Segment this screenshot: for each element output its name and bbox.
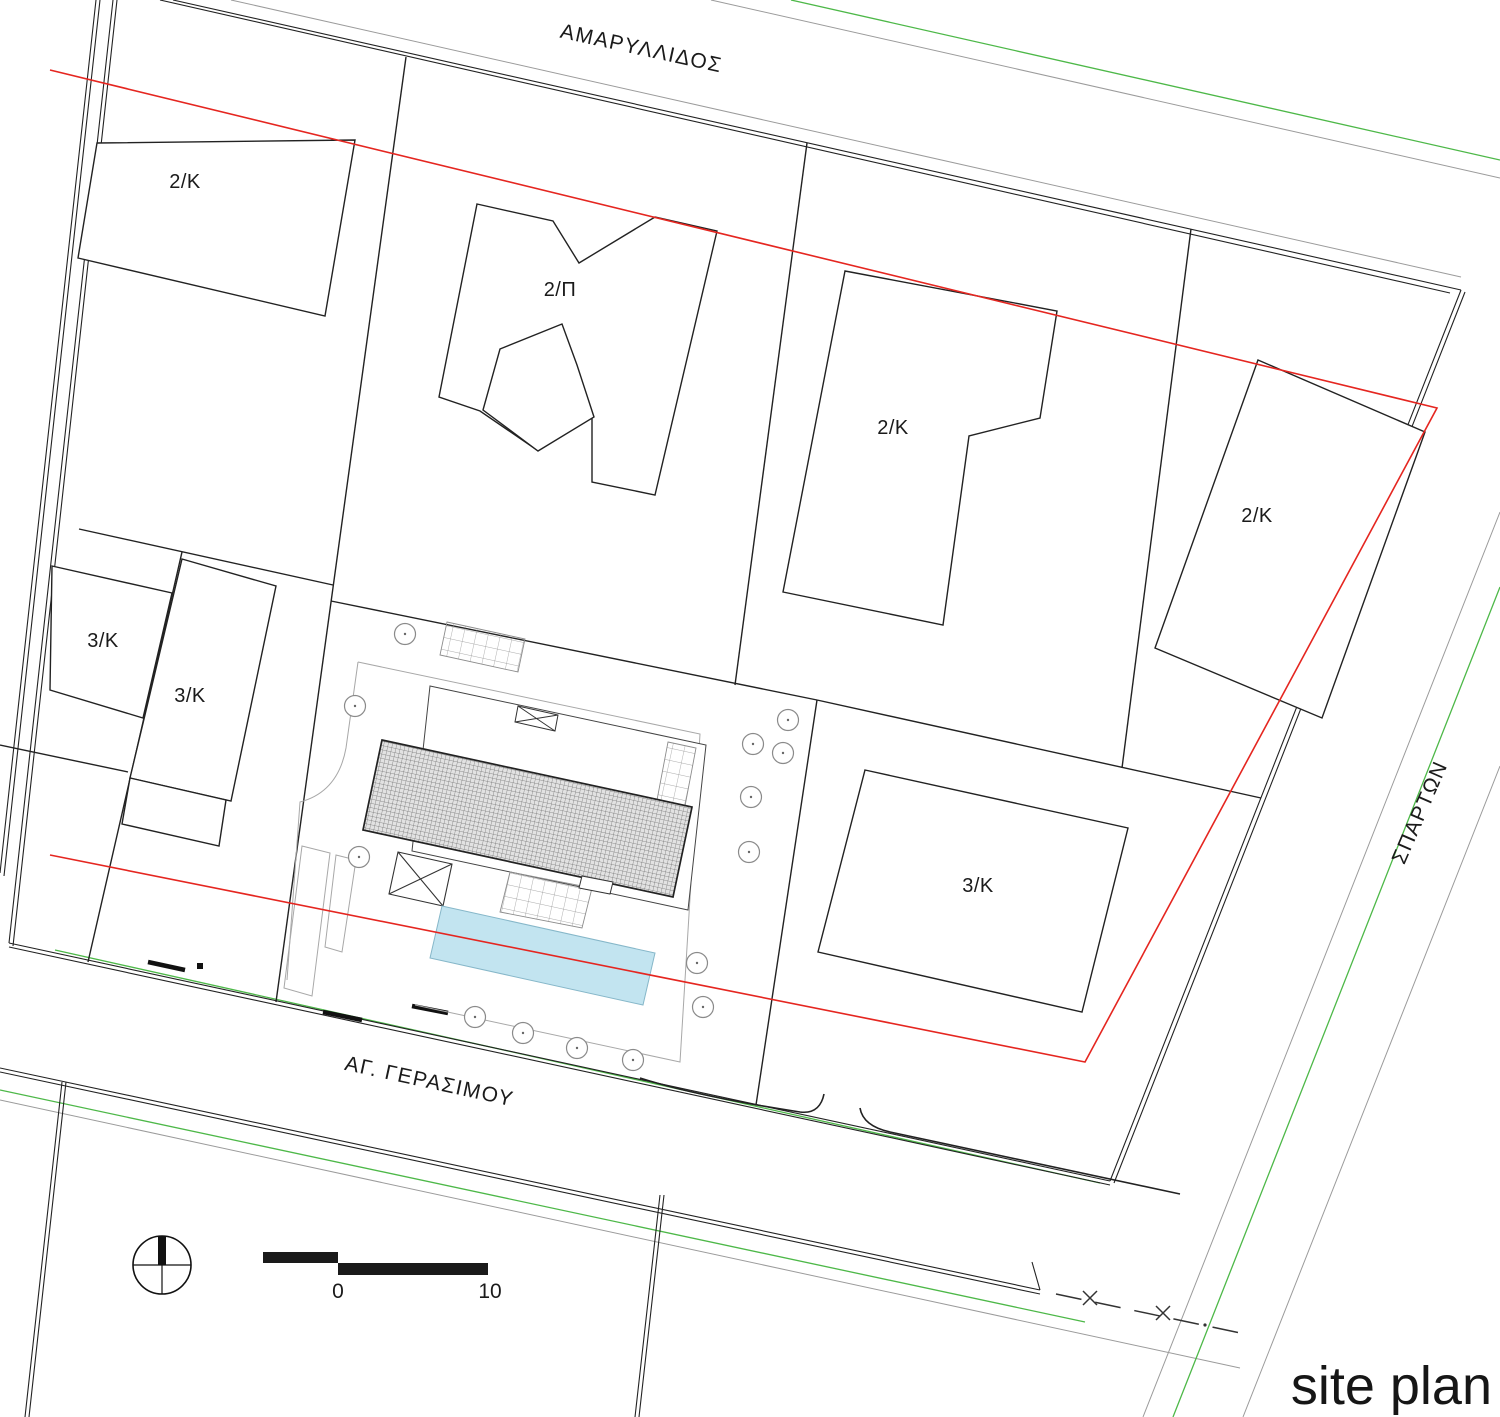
street-top-label: ΑΜΑΡΥΛΛΙΔΟΣ — [558, 20, 724, 78]
site-plan-drawing: 0 10 ΑΜΑΡΥΛΛΙΔΟΣ ΣΠΑΡΤΩΝ ΑΓ. ΓΕΡΑΣΙΜΟΥ 2… — [0, 0, 1500, 1417]
scale-end-label: 10 — [478, 1280, 501, 1303]
gate-marks — [148, 962, 448, 1020]
pool — [430, 906, 655, 1005]
tree — [349, 847, 370, 868]
buildings — [50, 140, 1425, 1012]
parcel-label-south: 3/K — [962, 875, 994, 897]
tree — [739, 842, 760, 863]
tree — [743, 734, 764, 755]
street-right-label: ΣΠΑΡΤΩΝ — [1388, 757, 1453, 867]
fence-x-line — [1056, 1291, 1245, 1334]
parcel-label-top-center: 2/Π — [544, 279, 577, 301]
drawing-title: site plan — [1291, 1356, 1492, 1416]
building-2k-right — [1155, 360, 1425, 718]
tree — [741, 787, 762, 808]
tree — [465, 1007, 486, 1028]
tree — [778, 710, 799, 731]
terrace-grid-north — [440, 622, 525, 672]
tree — [623, 1050, 644, 1071]
tree — [773, 743, 794, 764]
tree — [513, 1023, 534, 1044]
parcel-label-top-left: 2/K — [169, 171, 201, 193]
tree — [345, 696, 366, 717]
tree — [693, 997, 714, 1018]
parcel-label-left-lower: 3/K — [174, 685, 206, 707]
house — [363, 622, 706, 1005]
street-bottom-label: ΑΓ. ΓΕΡΑΣΙΜΟΥ — [343, 1052, 516, 1111]
parcel-label-right: 2/K — [1241, 505, 1273, 527]
trellis-x-box — [389, 852, 452, 906]
parcel-label-left-upper: 3/K — [87, 630, 119, 652]
north-arrow — [133, 1236, 191, 1294]
tree — [687, 953, 708, 974]
building-2k-top-left — [78, 140, 355, 316]
scale-bar: 0 10 — [263, 1252, 502, 1303]
scale-start-label: 0 — [332, 1280, 344, 1303]
tree — [395, 624, 416, 645]
building-2k-center — [783, 271, 1057, 625]
building-2p-outline — [439, 204, 717, 495]
parcel-label-center: 2/K — [877, 417, 909, 439]
curb-cuts — [640, 1078, 1180, 1194]
tree — [567, 1038, 588, 1059]
